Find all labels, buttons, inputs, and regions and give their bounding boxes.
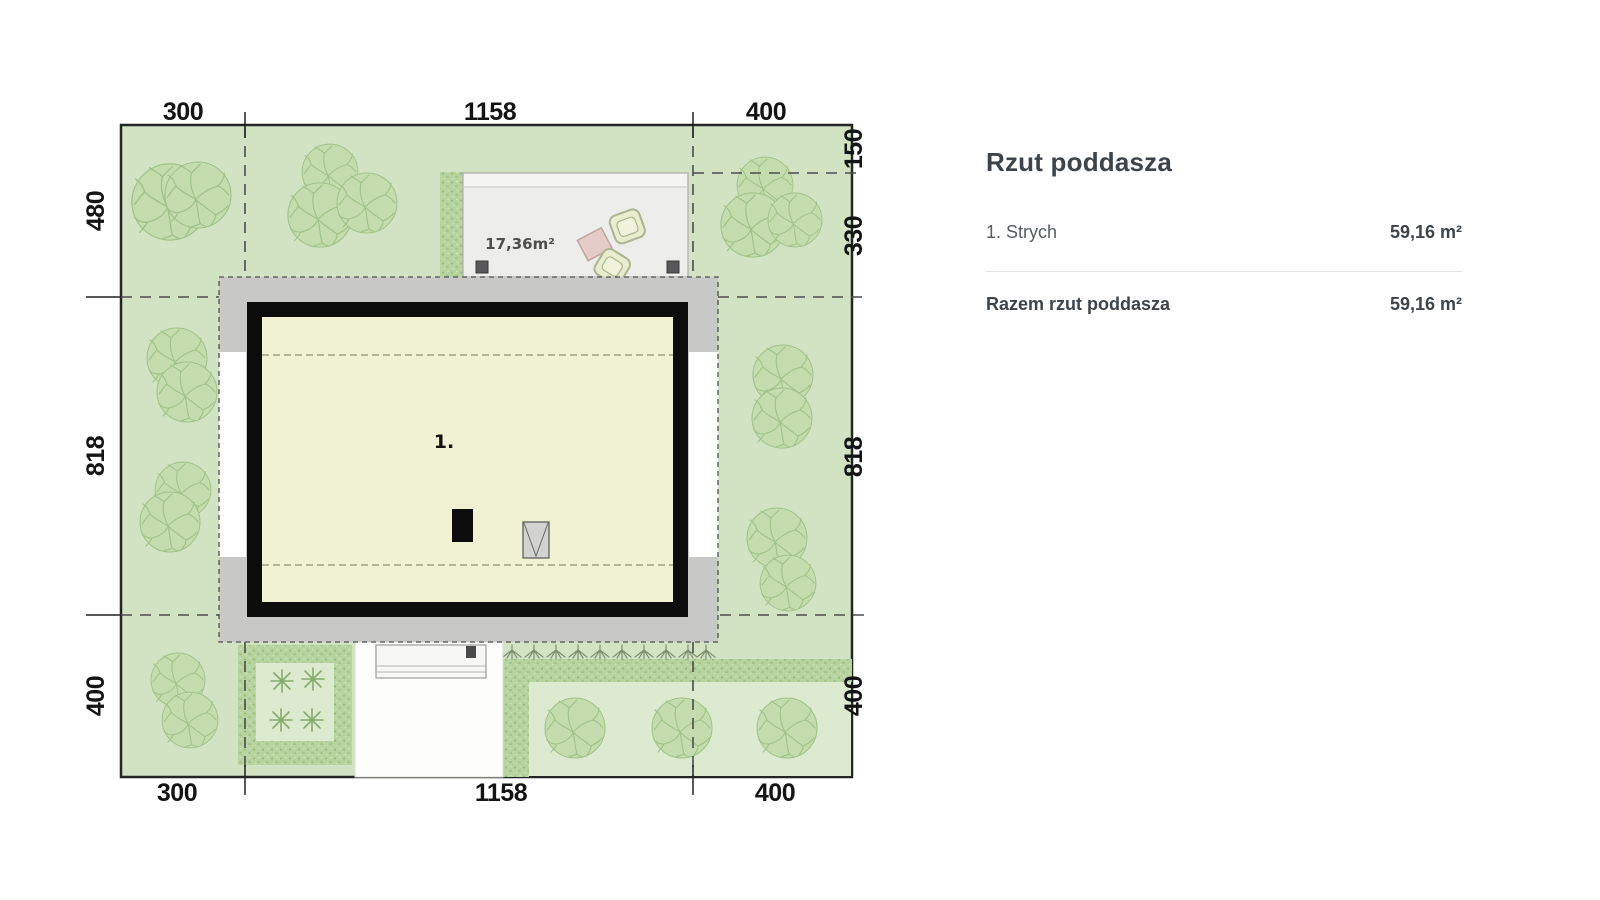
- tree: [760, 555, 816, 611]
- attic-room: [262, 317, 673, 602]
- tree: [157, 362, 217, 422]
- tree: [768, 193, 822, 247]
- dim-left-400: 400: [82, 676, 110, 716]
- terrace-post: [476, 261, 488, 273]
- hedge-vertical: [503, 659, 529, 777]
- plant-icon: [271, 670, 293, 692]
- tree: [165, 162, 231, 228]
- divider: [986, 271, 1462, 272]
- flower-bed: [256, 663, 334, 741]
- roof-verge-left: [219, 352, 246, 557]
- dim-bottom-400: 400: [755, 779, 795, 807]
- dim-top-400: 400: [746, 98, 786, 126]
- dim-left-480: 480: [82, 191, 110, 231]
- tree: [337, 173, 397, 233]
- room-number-label: 1.: [434, 431, 454, 453]
- terrace-step: [464, 174, 687, 187]
- total-area: 59,16 m²: [1390, 293, 1462, 315]
- tree: [652, 698, 712, 758]
- tree: [140, 492, 200, 552]
- tree: [162, 692, 218, 748]
- plant-icon: [301, 709, 323, 731]
- area-summary-panel: Rzut poddasza 1. Strych 59,16 m² Razem r…: [986, 0, 1462, 340]
- dim-bottom-1158: 1158: [475, 779, 528, 807]
- dim-right-150: 150: [840, 129, 868, 169]
- hedge-terrace: [440, 172, 463, 277]
- entry-door-mark: [466, 646, 476, 658]
- dim-top-300: 300: [163, 98, 203, 126]
- room-name: 1. Strych: [986, 221, 1057, 243]
- dim-right-330: 330: [840, 216, 868, 256]
- dim-bottom-300: 300: [157, 779, 197, 807]
- plant-icon: [302, 668, 324, 690]
- dim-right-400: 400: [840, 676, 868, 716]
- room-area: 59,16 m²: [1390, 221, 1462, 243]
- dim-left-818: 818: [82, 435, 110, 476]
- terrace: [463, 173, 688, 277]
- dim-right-818: 818: [840, 436, 868, 477]
- page-title: Rzut poddasza: [986, 148, 1172, 176]
- attic-hatch: [523, 522, 549, 558]
- dim-top-1158: 1158: [464, 98, 517, 126]
- tree: [757, 698, 817, 758]
- tree: [752, 388, 812, 448]
- total-label: Razem rzut poddasza: [986, 293, 1170, 315]
- attic-plan-page: 1. 17,36m² 300 1158 400 300 1158 400 480…: [0, 0, 1600, 900]
- tree: [545, 698, 605, 758]
- hedge-horizontal: [503, 659, 852, 682]
- area-row: 1. Strych 59,16 m²: [986, 221, 1462, 243]
- chimney: [452, 509, 473, 542]
- terrace-post: [667, 261, 679, 273]
- terrace-area-label: 17,36m²: [485, 235, 555, 253]
- site-plan-drawing: 1. 17,36m² 300 1158 400 300 1158 400 480…: [0, 0, 910, 860]
- total-row: Razem rzut poddasza 59,16 m²: [986, 293, 1462, 315]
- roof-verge-right: [689, 352, 718, 557]
- plant-icon: [270, 709, 292, 731]
